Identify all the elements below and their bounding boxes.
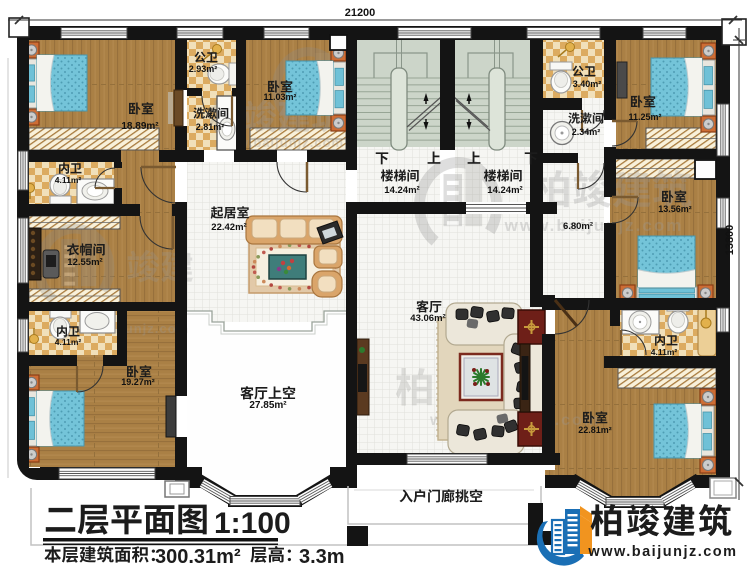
- svg-text:300.31m²: 300.31m²: [155, 546, 241, 568]
- svg-text:4.11m²: 4.11m²: [651, 347, 678, 357]
- svg-text:www.baijunjz.com: www.baijunjz.com: [587, 544, 737, 560]
- svg-text:6.80m²: 6.80m²: [563, 221, 593, 232]
- svg-text:1:100: 1:100: [214, 507, 291, 540]
- svg-text:2.81m²: 2.81m²: [196, 122, 225, 132]
- svg-text:18.89m²: 18.89m²: [121, 121, 159, 132]
- svg-text:22.81m²: 22.81m²: [578, 425, 612, 435]
- svg-text:12.55m²: 12.55m²: [67, 257, 102, 268]
- svg-text:2.93m²: 2.93m²: [189, 64, 218, 74]
- svg-text:3.3m: 3.3m: [299, 546, 345, 568]
- svg-text:3.40m²: 3.40m²: [573, 79, 602, 89]
- svg-text:2.34m²: 2.34m²: [572, 127, 601, 137]
- svg-text:13800: 13800: [724, 225, 736, 256]
- svg-text:14.24m²: 14.24m²: [487, 185, 522, 196]
- svg-text:22.42m²: 22.42m²: [211, 222, 246, 233]
- svg-text:27.85m²: 27.85m²: [249, 400, 287, 411]
- svg-text:13.56m²: 13.56m²: [658, 204, 692, 214]
- svg-text:14.24m²: 14.24m²: [384, 185, 419, 196]
- svg-text:21200: 21200: [345, 7, 376, 19]
- svg-text:11.25m²: 11.25m²: [628, 112, 661, 122]
- svg-text:4.11m²: 4.11m²: [55, 175, 82, 185]
- svg-text:43.06m²: 43.06m²: [410, 313, 445, 324]
- svg-text:19.27m²: 19.27m²: [121, 377, 155, 387]
- svg-text:11.03m²: 11.03m²: [263, 92, 296, 102]
- svg-text:4.11m²: 4.11m²: [55, 337, 82, 347]
